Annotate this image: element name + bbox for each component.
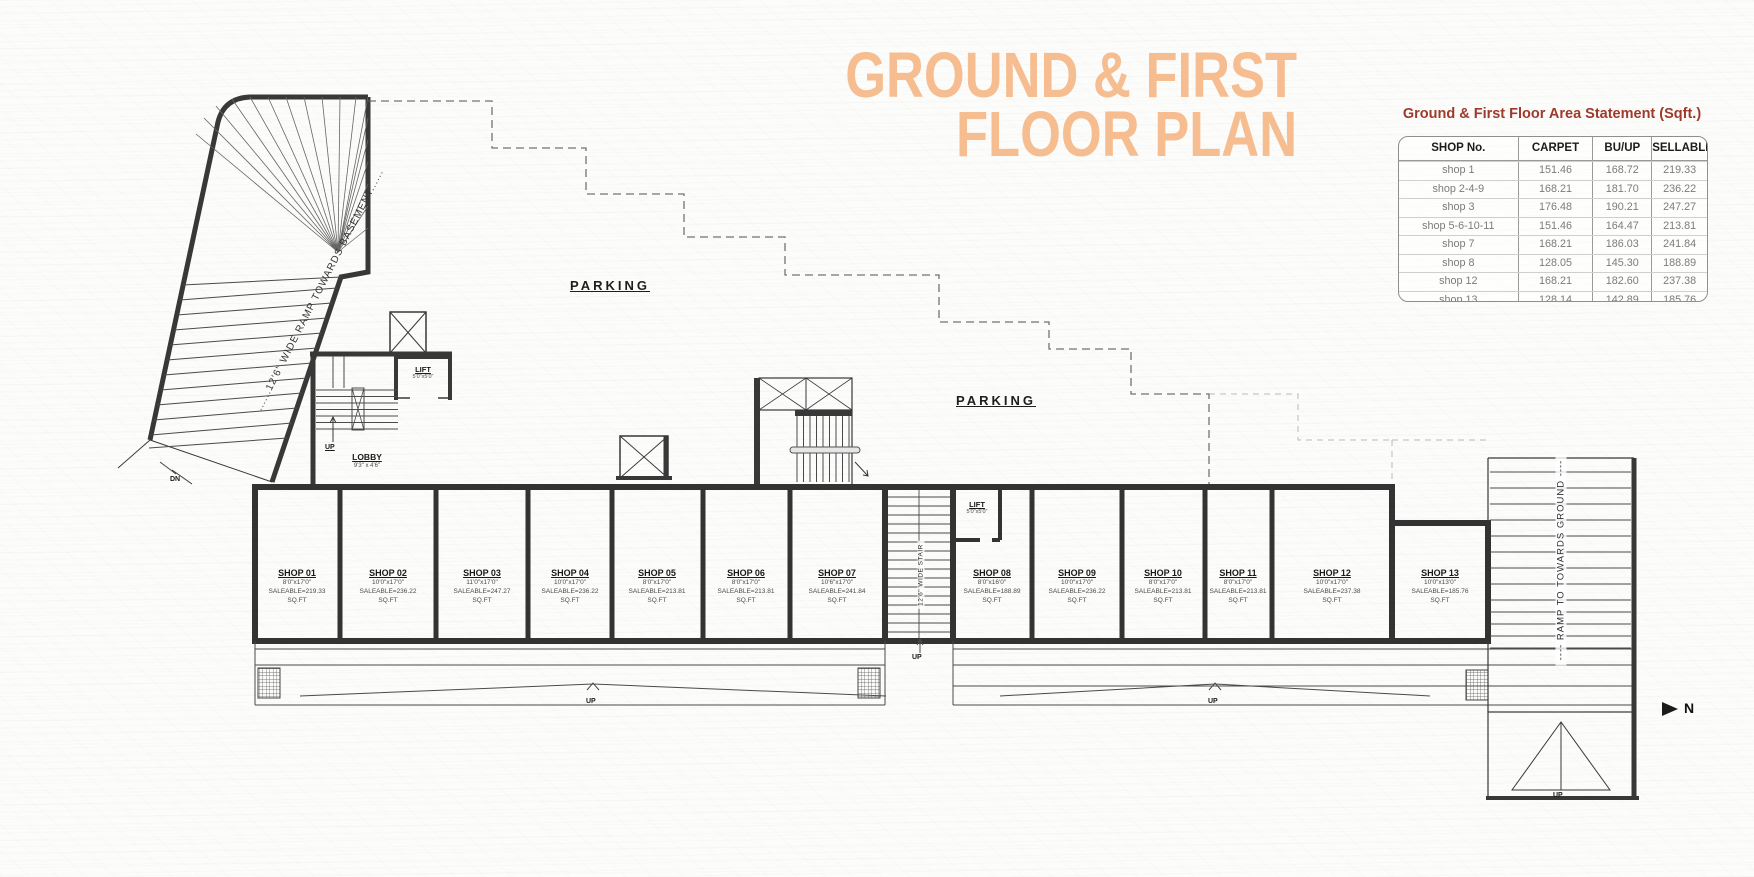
table-cell: 128.14	[1518, 292, 1593, 303]
column-header: SHOP No.	[1399, 137, 1518, 160]
mid-stair-label: 12'6" WIDE STAIR	[918, 541, 925, 609]
north-label: N	[1684, 700, 1694, 716]
dn-leader	[160, 462, 176, 474]
lift-size: 5'0"x5'0"	[398, 374, 448, 381]
table-cell: 168.72	[1592, 162, 1651, 180]
ground-ramp-label: ---- RAMP TO TOWARDS GROUND ----	[1556, 455, 1567, 666]
table-row: shop 2-4-9 168.21 181.70 236.22	[1399, 180, 1707, 199]
table-cell: 185.76	[1651, 292, 1707, 303]
table-cell: 168.21	[1518, 236, 1593, 254]
up-label-ground-ramp: UP	[1553, 792, 1563, 799]
table-cell: 247.27	[1651, 199, 1707, 217]
up-label-walkway-left: UP	[586, 698, 596, 705]
lobby-size: 9'3" x 4'6"	[322, 463, 412, 471]
table-cell: shop 7	[1399, 236, 1518, 254]
table-row: shop 8 128.05 145.30 188.89	[1399, 254, 1707, 273]
table-cell: shop 2-4-9	[1399, 181, 1518, 199]
shop-label-13: SHOP 13 10'0"x13'0" SALEABLE=185.76 SQ.F…	[1385, 567, 1495, 605]
lobby-room-label: LOBBY 9'3" x 4'6"	[322, 452, 412, 470]
table-cell: 188.89	[1651, 255, 1707, 273]
table-row: shop 7 168.21 186.03 241.84	[1399, 235, 1707, 254]
table-cell: shop 13	[1399, 292, 1518, 303]
table-cell: 151.46	[1518, 218, 1593, 236]
table-cell: 168.21	[1518, 181, 1593, 199]
shop-label-12: SHOP 12 10'0"x17'0" SALEABLE=237.38 SQ.F…	[1277, 567, 1387, 605]
table-row: shop 13 128.14 142.89 185.76	[1399, 291, 1707, 303]
table-cell: shop 8	[1399, 255, 1518, 273]
mid-shaft-box	[616, 436, 672, 478]
table-cell: 190.21	[1592, 199, 1651, 217]
table-cell: 241.84	[1651, 236, 1707, 254]
table-cell: shop 12	[1399, 273, 1518, 291]
table-cell: 164.47	[1592, 218, 1651, 236]
table-row: shop 12 168.21 182.60 237.38	[1399, 272, 1707, 291]
up-label-walkway-right: UP	[1208, 698, 1218, 705]
basement-ramp	[118, 97, 368, 484]
lift-name: LIFT	[952, 500, 1002, 509]
table-row: shop 5-6-10-11 151.46 164.47 213.81	[1399, 217, 1707, 236]
table-cell: shop 5-6-10-11	[1399, 218, 1518, 236]
north-arrow-icon	[1662, 702, 1678, 716]
table-cell: 145.30	[1592, 255, 1651, 273]
lift-size: 5'0"x5'0"	[952, 509, 1002, 516]
floor-plan-page: GROUND & FIRST FLOOR PLAN Ground & First…	[0, 0, 1754, 877]
table-cell: 219.33	[1651, 162, 1707, 180]
table-cell: 213.81	[1651, 218, 1707, 236]
page-title-line2: FLOOR PLAN	[845, 105, 1297, 164]
table-cell: shop 1	[1399, 162, 1518, 180]
table-cell: 176.48	[1518, 199, 1593, 217]
dn-label: DN	[170, 476, 180, 483]
table-cell: 168.21	[1518, 273, 1593, 291]
table-cell: 237.38	[1651, 273, 1707, 291]
area-table-title: Ground & First Floor Area Statement (Sqf…	[1398, 106, 1706, 122]
shop-row	[255, 487, 1488, 641]
table-row: shop 3 176.48 190.21 247.27	[1399, 198, 1707, 217]
column-header: BU/UP	[1592, 137, 1651, 160]
lift-shops-label: LIFT 5'0"x5'0"	[952, 500, 1002, 516]
table-header-row: SHOP No. CARPET BU/UP SELLABLE	[1399, 137, 1707, 161]
table-cell: 128.05	[1518, 255, 1593, 273]
page-title-line1: GROUND & FIRST	[845, 46, 1297, 105]
table-cell: shop 3	[1399, 199, 1518, 217]
parking-label-right: PARKING	[916, 393, 1076, 408]
lift-name: LIFT	[398, 365, 448, 374]
table-row: shop 1 151.46 168.72 219.33	[1399, 161, 1707, 180]
table-cell: 182.60	[1592, 273, 1651, 291]
up-label-mid-stair: UP	[912, 654, 922, 661]
walkways	[255, 639, 1632, 705]
lobby-name: LOBBY	[322, 452, 412, 463]
table-cell: 186.03	[1592, 236, 1651, 254]
lift-lobby-label: LIFT 5'0"x5'0"	[398, 365, 448, 381]
column-header: SELLABLE	[1651, 137, 1707, 160]
table-cell: 181.70	[1592, 181, 1651, 199]
column-header: CARPET	[1518, 137, 1593, 160]
shop-label-07: SHOP 07 10'6"x17'0" SALEABLE=241.84 SQ.F…	[782, 567, 892, 605]
parking-label-left: PARKING	[530, 278, 690, 293]
table-cell: 236.22	[1651, 181, 1707, 199]
table-cell: 151.46	[1518, 162, 1593, 180]
table-cell: 142.89	[1592, 292, 1651, 303]
up-label-lobby: UP	[325, 444, 335, 451]
page-title: GROUND & FIRST FLOOR PLAN	[845, 46, 1297, 164]
mid-stair-tower	[757, 378, 868, 484]
area-table: SHOP No. CARPET BU/UP SELLABLE shop 1 15…	[1398, 136, 1708, 302]
